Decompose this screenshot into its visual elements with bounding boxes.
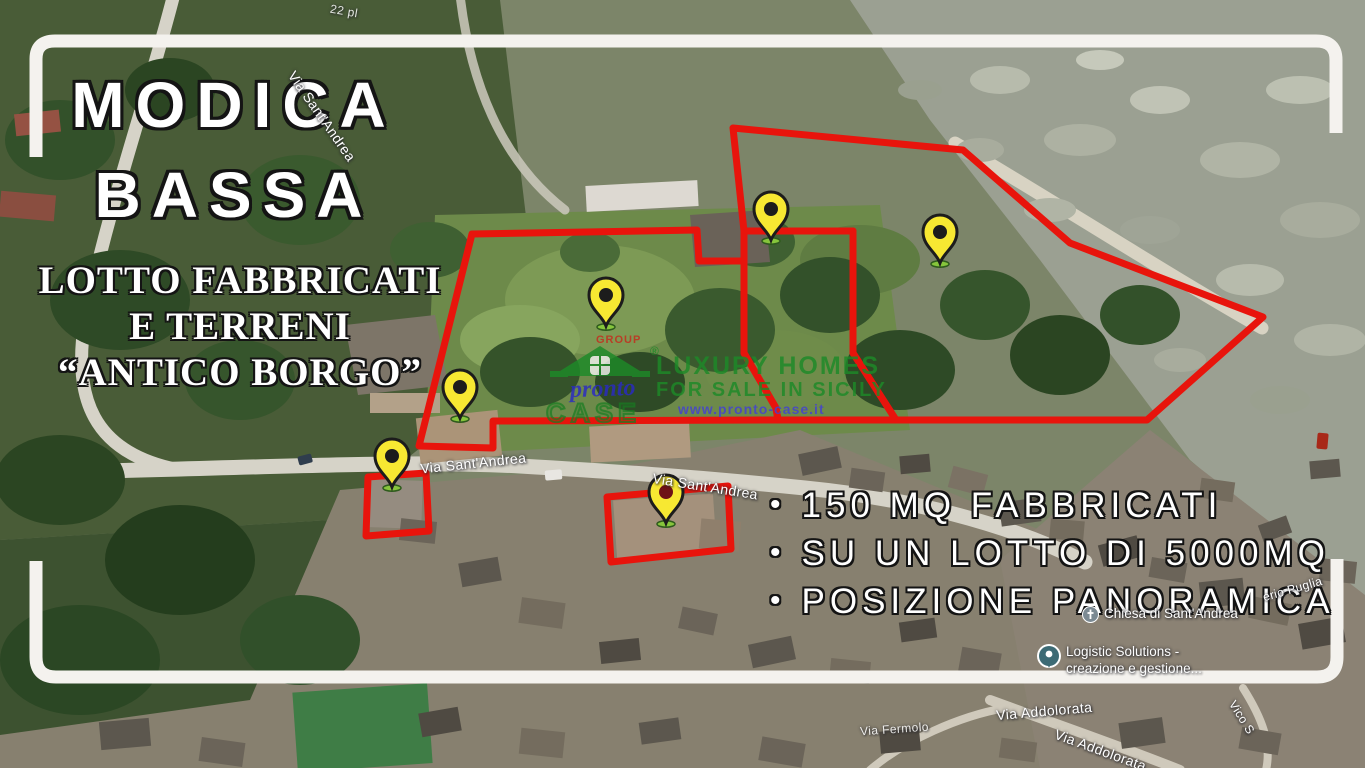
real-estate-flyer: MODICA BASSA LOTTO FABBRICATI E TERRENI … xyxy=(0,0,1365,768)
aerial-photo xyxy=(0,0,1365,768)
